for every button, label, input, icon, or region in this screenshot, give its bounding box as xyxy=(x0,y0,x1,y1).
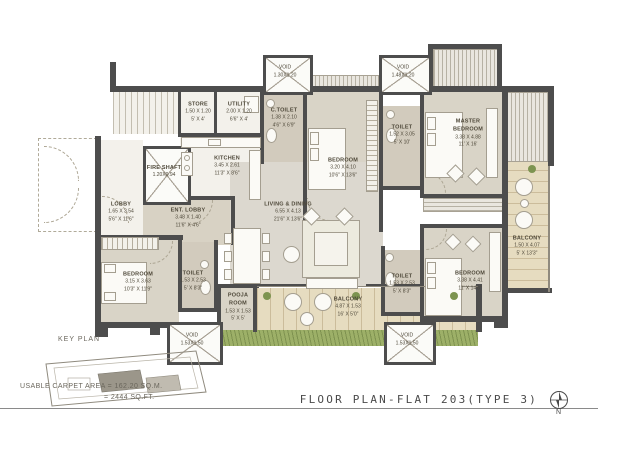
room-dim-m: 1.53 X 2.53 xyxy=(180,278,206,286)
title-rule xyxy=(0,408,598,409)
wall xyxy=(424,86,554,92)
room-dim-m: 1.53X1.50 xyxy=(396,340,419,348)
room-dim-m: 1.20X0.94 xyxy=(147,172,181,180)
balcony-table xyxy=(300,312,314,326)
pillow xyxy=(427,277,436,289)
room-name: MASTER BEDROOM xyxy=(442,117,494,134)
label-bedroom-right: BEDROOM 3.38 X 4.41 11' X 14'6" xyxy=(455,269,485,292)
room-name: UTILITY xyxy=(226,100,252,108)
label-void-top-left: VOID 1.30X1.20 xyxy=(274,65,297,80)
balcony-chair xyxy=(515,178,533,196)
room-dim-ft: 5' X 10' xyxy=(389,139,415,147)
room-dim-m: 1.50 X 1.20 xyxy=(185,109,211,117)
room-name: BALCONY xyxy=(334,295,363,303)
floor-plan-page: STORE 1.50 X 1.20 5' X 4' UTILITY 2.00 X… xyxy=(0,0,626,470)
coffee-table xyxy=(283,246,300,263)
duct-top-right xyxy=(433,49,499,88)
room-name: BEDROOM xyxy=(455,269,485,277)
label-master-bedroom: MASTER BEDROOM 3.38 X 4.88 11' X 16' xyxy=(442,117,494,149)
sofa xyxy=(306,278,358,289)
room-dim-ft: 10'3" X 11'9" xyxy=(123,286,153,294)
room-name: ENT. LOBBY xyxy=(171,206,206,214)
pillow xyxy=(310,132,319,145)
pillow xyxy=(427,133,436,146)
pillow xyxy=(310,148,319,161)
planter-grass-strip xyxy=(221,330,478,346)
wall-column xyxy=(95,322,108,337)
wardrobe-bedroom-right xyxy=(489,232,501,292)
room-lobby xyxy=(100,140,143,245)
room-name: POOJA ROOM xyxy=(221,291,255,308)
plant-pot xyxy=(528,165,536,173)
room-dim-m: 3.45 X 2.61 xyxy=(214,163,240,171)
dining-chair xyxy=(262,251,270,262)
dining-chair xyxy=(262,233,270,244)
pillow xyxy=(427,262,436,274)
living-rug-inner xyxy=(314,232,348,266)
room-dim-ft: 5'6" X 11'6" xyxy=(108,216,134,224)
label-balcony-right: BALCONY 1.50 X 4.07 5' X 13'3" xyxy=(513,234,542,257)
dining-chair xyxy=(224,233,232,244)
wall-stub xyxy=(110,62,116,88)
room-dim-ft: 11' X 16' xyxy=(442,141,494,149)
carpet-area-line1: USABLE CARPET AREA = 162.20 SQ.M. xyxy=(20,381,162,392)
wall xyxy=(420,194,508,198)
wall xyxy=(420,92,424,196)
wall-column xyxy=(150,322,160,335)
room-dim-ft: 6'6" X 4' xyxy=(226,116,252,124)
key-plan-title: KEY PLAN xyxy=(58,336,100,343)
wall xyxy=(428,44,502,49)
room-dim-m: 1.38 X 2.10 xyxy=(271,115,298,123)
carpet-area-line2: = 2444 SQ.FT. xyxy=(104,392,155,403)
room-name: LIVING & DINING xyxy=(264,200,312,208)
kitchen-counter xyxy=(181,137,261,148)
room-dim-ft: 11'6" X 4'6" xyxy=(171,222,206,230)
room-dim-ft: 11'3" X 8'6" xyxy=(214,170,240,178)
label-toilet-top: TOILET 1.52 X 3.05 5' X 10' xyxy=(389,123,415,146)
balcony-rail xyxy=(548,166,550,292)
room-name: VOID xyxy=(396,333,419,341)
label-bedroom-top: BEDROOM 3.20 X 4.10 10'6" X 13'6" xyxy=(328,156,358,179)
label-balcony-bottom: BALCONY 4.87 X 1.53 16' X 5'0" xyxy=(334,295,363,318)
room-name: BEDROOM xyxy=(328,156,358,164)
dining-chair xyxy=(224,269,232,280)
room-dim-ft: 5' X 13'3" xyxy=(513,250,542,258)
label-void-bottom-left: VOID 1.53X1.50 xyxy=(181,333,204,348)
label-utility: UTILITY 2.00 X 1.20 6'6" X 4' xyxy=(226,100,252,123)
dining-chair xyxy=(224,251,232,262)
kitchen-platform xyxy=(249,150,261,200)
wall xyxy=(381,186,424,190)
wall xyxy=(379,92,383,232)
basin xyxy=(200,260,209,269)
kitchen-sink xyxy=(208,139,221,146)
label-void-top-right: VOID 1.48X1.20 xyxy=(392,65,415,80)
room-dim-m: 1.30X1.20 xyxy=(274,72,297,80)
room-dim-m: 1.52 X 3.05 xyxy=(389,132,415,140)
label-toilet-left: TOILET 1.53 X 2.53 5' X 8'3" xyxy=(180,269,206,292)
room-dim-m: 1.50 X 4.07 xyxy=(513,243,542,251)
room-dim-ft: 4'6" X 6'9" xyxy=(271,122,298,130)
plant-pot xyxy=(263,292,271,300)
basin xyxy=(385,253,394,262)
wall xyxy=(178,92,181,136)
room-dim-m: 3.38 X 4.88 xyxy=(442,134,494,142)
pillow xyxy=(427,117,436,130)
ledge-above-balcony-right xyxy=(506,92,550,162)
label-fire-shaft: FIRE SHAFT 1.20X0.94 xyxy=(147,164,181,180)
room-name: KITCHEN xyxy=(214,154,240,162)
wall xyxy=(548,86,554,166)
ledge-below-master xyxy=(423,198,507,212)
room-dim-m: 3.20 X 4.10 xyxy=(328,165,358,173)
room-name: VOID xyxy=(274,65,297,73)
wardrobe-bedroom-left xyxy=(101,237,159,250)
room-dim-m: 2.00 X 1.20 xyxy=(226,109,252,117)
room-dim-ft: 21'6" X 13'6" xyxy=(264,216,312,224)
pillow xyxy=(104,264,116,273)
hob-burner xyxy=(184,155,190,161)
room-dim-m: 1.53 X 1.53 xyxy=(221,308,255,316)
room-name: BALCONY xyxy=(513,234,542,242)
balcony-chair xyxy=(284,293,302,311)
staircase xyxy=(113,92,179,134)
room-name: TOILET xyxy=(180,269,206,277)
label-store: STORE 1.50 X 1.20 5' X 4' xyxy=(185,100,211,123)
wall xyxy=(178,308,218,312)
label-kitchen: KITCHEN 3.45 X 2.61 11'3" X 8'6" xyxy=(214,154,240,177)
room-dim-m: 1.53X1.50 xyxy=(181,340,204,348)
balcony-chair xyxy=(314,293,332,311)
north-compass-icon xyxy=(549,390,569,410)
room-dim-m: 6.55 X 4.13 xyxy=(264,209,312,217)
dining-table xyxy=(233,228,261,284)
wall xyxy=(497,44,502,92)
room-dim-m: 3.38 X 4.41 xyxy=(455,278,485,286)
room-dim-ft: 5' X 8'3" xyxy=(180,285,206,293)
room-dim-m: 4.87 X 1.53 xyxy=(334,304,363,312)
wall xyxy=(420,224,506,228)
label-living-dining: LIVING & DINING 6.55 X 4.13 21'6" X 13'6… xyxy=(264,200,312,223)
room-dim-m: 3.15 X 3.63 xyxy=(123,279,153,287)
room-name: BEDROOM xyxy=(123,270,153,278)
label-lobby: LOBBY 1.65 X 3.54 5'6" X 11'6" xyxy=(108,200,134,223)
room-dim-ft: 11' X 14'6" xyxy=(455,285,485,293)
wall xyxy=(305,86,381,92)
room-name: FIRE SHAFT xyxy=(147,164,181,172)
balcony-chair xyxy=(515,211,533,229)
label-common-toilet: C.TOILET 1.38 X 2.10 4'6" X 6'9" xyxy=(271,106,298,129)
plant-pot xyxy=(450,292,458,300)
room-name: TOILET xyxy=(389,272,415,280)
balcony-table xyxy=(520,199,529,208)
room-dim-ft: 5' X 4' xyxy=(185,116,211,124)
plan-title: FLOOR PLAN-FLAT 203(TYPE 3) xyxy=(300,393,538,406)
north-label: N xyxy=(556,409,561,416)
label-void-bottom-right: VOID 1.53X1.50 xyxy=(396,333,419,348)
room-name: VOID xyxy=(392,65,415,73)
wall-column xyxy=(494,316,508,328)
label-bedroom-left: BEDROOM 3.15 X 3.63 10'3" X 11'9" xyxy=(123,270,153,293)
wc-common-toilet xyxy=(266,128,277,143)
label-ent-lobby: ENT. LOBBY 3.48 X 1.40 11'6" X 4'6" xyxy=(171,206,206,229)
room-name: C.TOILET xyxy=(271,106,298,114)
wardrobe-bedroom-top xyxy=(366,100,378,192)
label-pooja-room: POOJA ROOM 1.53 X 1.53 5' X 5' xyxy=(221,291,255,323)
wall xyxy=(506,288,552,293)
room-dim-m: 1.48X1.20 xyxy=(392,72,415,80)
hob-burner xyxy=(184,165,190,171)
room-dim-m: 3.48 X 1.40 xyxy=(171,215,206,223)
room-name: LOBBY xyxy=(108,200,134,208)
room-dim-ft: 16' X 5'0" xyxy=(334,311,363,319)
wall xyxy=(381,312,424,316)
basin xyxy=(386,110,395,119)
wall xyxy=(214,92,217,136)
room-dim-ft: 5' X 8'3" xyxy=(389,288,415,296)
room-dim-m: 1.65 X 3.54 xyxy=(108,209,134,217)
room-dim-m: 1.53 X 2.53 xyxy=(389,281,415,289)
label-toilet-right: TOILET 1.53 X 2.53 5' X 8'3" xyxy=(389,272,415,295)
dining-chair xyxy=(262,269,270,280)
room-name: VOID xyxy=(181,333,204,341)
pillow xyxy=(104,292,116,301)
wall xyxy=(110,86,266,92)
wall xyxy=(420,224,424,320)
room-name: TOILET xyxy=(389,123,415,131)
room-dim-ft: 5' X 5' xyxy=(221,315,255,323)
room-name: STORE xyxy=(185,100,211,108)
room-dim-ft: 10'6" X 13'6" xyxy=(328,172,358,180)
